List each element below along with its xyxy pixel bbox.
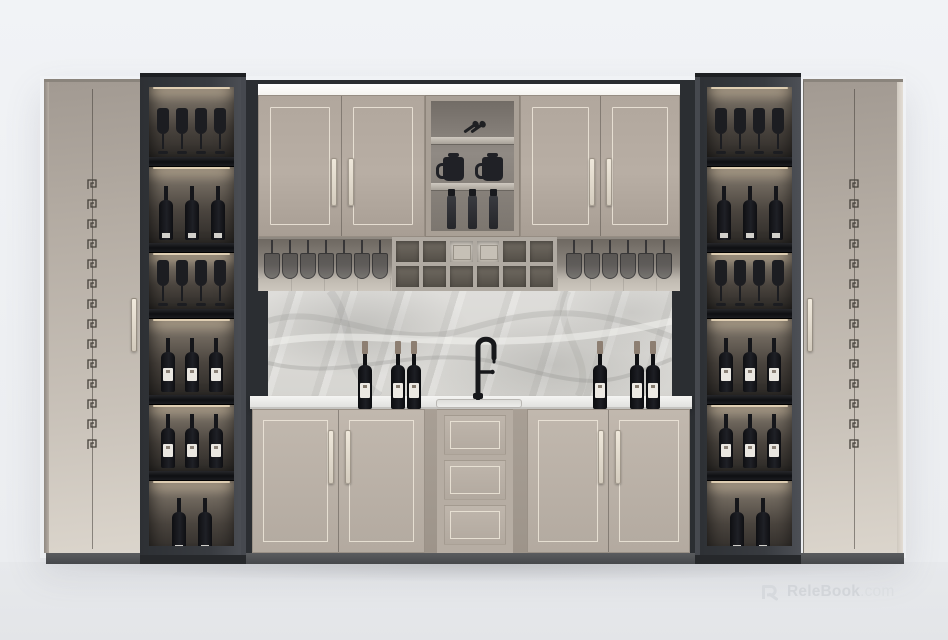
lower-cabinet-left: [252, 409, 425, 553]
wine-cubby: [396, 266, 419, 287]
hanging-wine-glass: [583, 240, 600, 282]
wine-cubby: [477, 241, 500, 262]
door-trim: [532, 107, 589, 225]
storage-box: [480, 245, 498, 260]
wine-glass: [771, 260, 785, 306]
hanging-wine-glass: [299, 240, 316, 282]
hanging-wine-glass: [601, 240, 618, 282]
wine-glass: [156, 108, 170, 154]
tower-shelf-board: [149, 471, 234, 481]
cabinet-door: [528, 410, 609, 552]
wine-cubby: [450, 241, 473, 262]
cabinet-door: [609, 410, 689, 552]
drawer-stack: [437, 409, 513, 553]
left-tall-cabinet: [44, 79, 141, 553]
tower-shelves: [149, 87, 234, 546]
wine-glass: [733, 108, 747, 154]
tower-shelf-board: [707, 157, 792, 167]
hanging-glasses: [258, 240, 392, 282]
door-trim: [619, 420, 679, 542]
wine-bottle: [159, 186, 173, 240]
cabinet-door: [259, 96, 342, 236]
upper-cabinet-right: [520, 95, 680, 237]
tower-shelf-board: [149, 309, 234, 319]
wine-bottle: [719, 338, 733, 392]
counter-wine-bottle: [646, 341, 660, 409]
tower-shelf-wine-glasses: [707, 87, 792, 157]
dark-jug: [443, 157, 464, 181]
cabinet-door: [342, 96, 424, 236]
greek-key-fret-pattern: [847, 178, 861, 460]
wine-glass: [213, 260, 227, 306]
sink: [436, 399, 522, 408]
wine-cubby: [423, 241, 446, 262]
door-trim: [349, 420, 414, 542]
wine-glass: [771, 108, 785, 154]
wine-bottle: [743, 186, 757, 240]
drawer-trim: [450, 421, 500, 449]
wine-glass: [714, 260, 728, 306]
tower-shelf-board: [707, 243, 792, 253]
cabinet-door: [253, 410, 339, 552]
cabinet-door: [339, 410, 424, 552]
tower-shelf-labeled-bottles: [707, 319, 792, 395]
hanging-glasses: [557, 240, 680, 282]
wine-bottle: [756, 498, 770, 546]
tower-shelf-dark-bottles: [707, 481, 792, 546]
watermark: ReleBook.com: [760, 583, 894, 601]
watermark-suffix: .com: [860, 583, 894, 600]
wine-glass: [175, 260, 189, 306]
tower-shelf-labeled-bottles: [149, 405, 234, 471]
tower-shelf-board: [707, 309, 792, 319]
door-handle: [615, 430, 621, 484]
hanging-wine-glass: [619, 240, 636, 282]
storage-box: [453, 245, 471, 260]
counter-wine-bottle: [630, 341, 644, 409]
door-handle: [598, 430, 604, 484]
wine-bottle: [161, 414, 175, 468]
wine-bar-render: ReleBook.com: [0, 0, 948, 640]
wine-glass: [156, 260, 170, 306]
wine-bottle: [209, 414, 223, 468]
wine-glass: [752, 260, 766, 306]
wine-bottle: [211, 186, 225, 240]
tower-shelf-board: [149, 395, 234, 405]
cabinet-door: [601, 96, 680, 236]
hanging-wine-glass: [335, 240, 352, 282]
compartment-dark-jugs: [431, 145, 514, 183]
dark-jug: [482, 157, 503, 181]
wine-cubby: [477, 266, 500, 287]
wine-bottle: [209, 338, 223, 392]
left-display-tower: [140, 73, 246, 555]
wine-bottle: [767, 338, 781, 392]
tower-shelf-dark-bottles: [149, 167, 234, 243]
relebook-r-logo-icon: [760, 584, 780, 601]
upper-cabinet-left: [258, 95, 425, 237]
cabinet-stile: [513, 409, 527, 553]
wine-bottle: [743, 338, 757, 392]
counter-wine-bottle: [407, 341, 421, 409]
stemware-rack-right: [557, 237, 680, 291]
wine-glass: [194, 260, 208, 306]
drawer: [444, 415, 506, 455]
door-handle: [345, 430, 351, 484]
tower-shelf-board: [707, 395, 792, 405]
shelf-compartments: [431, 101, 514, 231]
tower-shelf-dark-bottles: [707, 167, 792, 243]
right-tall-cabinet: [803, 79, 903, 553]
door-trim: [612, 107, 669, 225]
compartment-ladles: [431, 101, 514, 137]
drawer: [444, 460, 506, 500]
wine-cubby: [503, 266, 526, 287]
wine-bottle: [161, 338, 175, 392]
wine-bottle: [185, 186, 199, 240]
door-handle: [606, 158, 612, 206]
wine-cubby: [450, 266, 473, 287]
drawer-trim: [450, 466, 500, 494]
tower-shelves: [707, 87, 792, 546]
wine-cubby-rack: [392, 237, 557, 291]
hanging-wine-glass: [565, 240, 582, 282]
tower-shelf-board: [149, 157, 234, 167]
counter-wine-bottle: [391, 341, 405, 409]
wine-bottle: [198, 498, 212, 546]
door-handle: [589, 158, 595, 206]
wine-glass: [175, 108, 189, 154]
compartment-dark-bottles: [431, 191, 514, 231]
door-handle: [328, 430, 334, 484]
door-trim: [538, 420, 598, 542]
wine-cubby: [423, 266, 446, 287]
wine-bottle: [767, 414, 781, 468]
wine-glass: [714, 108, 728, 154]
tower-shelf-wine-glasses: [707, 253, 792, 309]
tower-shelf-board: [707, 471, 792, 481]
wine-bottle: [769, 186, 783, 240]
tower-shelf-wine-glasses: [149, 253, 234, 309]
wine-bottle: [743, 414, 757, 468]
wine-bottle: [719, 414, 733, 468]
hanging-wine-glass: [353, 240, 370, 282]
drawer-trim: [450, 511, 500, 539]
wine-glass: [733, 260, 747, 306]
counter-wine-bottle: [593, 341, 607, 409]
stemware-rack-left: [258, 237, 392, 291]
wine-cubby: [396, 241, 419, 262]
hanging-wine-glass: [637, 240, 654, 282]
door-handle: [331, 158, 337, 206]
shelf-board: [431, 137, 514, 145]
wine-bottle: [185, 414, 199, 468]
tower-shelf-labeled-bottles: [149, 319, 234, 395]
tower-shelf-board: [149, 243, 234, 253]
wine-bottle: [717, 186, 731, 240]
wine-bottle: [730, 498, 744, 546]
wine-bottle: [172, 498, 186, 546]
hanging-wine-glass: [263, 240, 280, 282]
wine-cubby: [503, 241, 526, 262]
cabinet-handle: [131, 298, 137, 352]
tower-shelf-labeled-bottles: [707, 405, 792, 471]
dark-bottle: [489, 195, 498, 229]
cabinet-stile: [425, 409, 437, 553]
counter-wine-bottle: [358, 341, 372, 409]
tower-shelf-wine-glasses: [149, 87, 234, 157]
right-display-tower: [695, 73, 801, 555]
wine-bottle: [185, 338, 199, 392]
cabinet-handle: [807, 298, 813, 352]
wine-glass: [194, 108, 208, 154]
hanging-wine-glass: [281, 240, 298, 282]
watermark-brand: ReleBook: [787, 583, 860, 600]
wine-cubby: [530, 266, 553, 287]
open-shelf-unit: [425, 95, 520, 237]
gooseneck-faucet: [450, 330, 506, 400]
tower-shelf-dark-bottles: [149, 481, 234, 546]
door-trim: [270, 107, 330, 225]
hanging-wine-glass: [655, 240, 672, 282]
door-trim: [263, 420, 328, 542]
wine-cubby: [530, 241, 553, 262]
door-handle: [348, 158, 354, 206]
hanging-wine-glass: [371, 240, 388, 282]
hanging-wine-glass: [317, 240, 334, 282]
dark-bottle: [468, 195, 477, 229]
drawer: [444, 505, 506, 545]
lower-cabinet-right: [527, 409, 690, 553]
dark-bottle: [447, 195, 456, 229]
greek-key-fret-pattern: [85, 178, 99, 460]
wine-glass: [213, 108, 227, 154]
door-trim: [353, 107, 413, 225]
wine-glass: [752, 108, 766, 154]
